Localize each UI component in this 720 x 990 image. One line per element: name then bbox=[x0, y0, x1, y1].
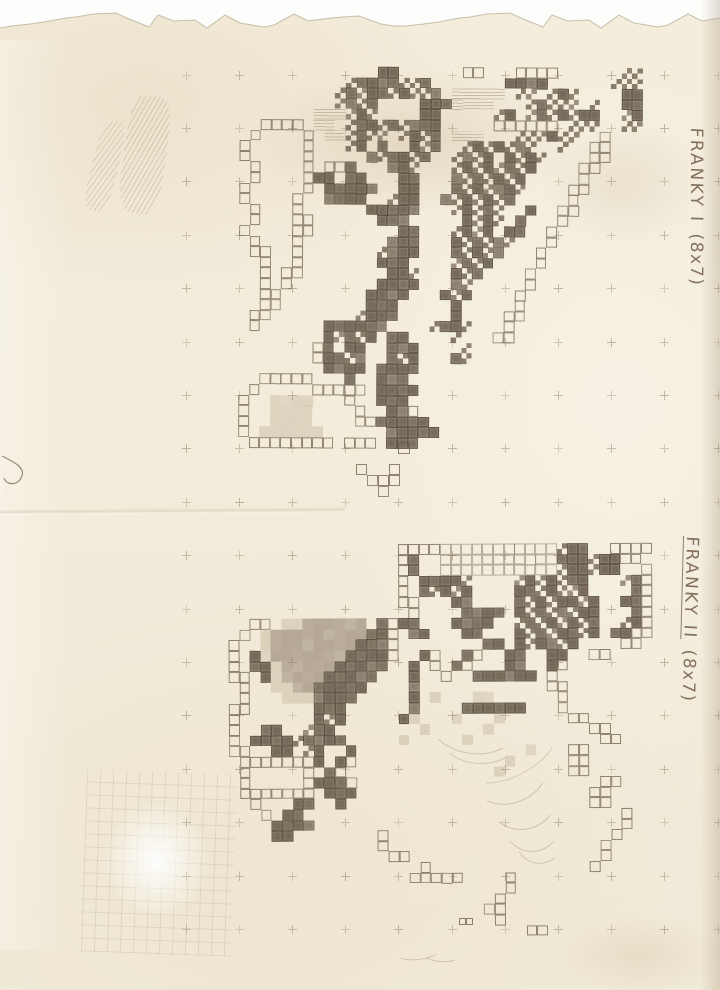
grid-cross bbox=[660, 338, 669, 347]
grid-cross bbox=[182, 925, 191, 934]
grid-cross bbox=[660, 231, 669, 240]
grid-cross bbox=[660, 872, 669, 881]
grid-cross bbox=[182, 765, 191, 774]
grid-cross bbox=[554, 338, 563, 347]
grid-cross bbox=[607, 444, 616, 453]
grid-cross bbox=[660, 498, 669, 507]
grid-cross bbox=[341, 605, 350, 614]
grid-cross bbox=[554, 765, 563, 774]
grid-cross bbox=[182, 498, 191, 507]
grid-cross bbox=[235, 925, 244, 934]
grid-cross bbox=[660, 177, 669, 186]
grid-cross bbox=[660, 391, 669, 400]
grid-cross bbox=[448, 765, 457, 774]
grid-cross bbox=[501, 444, 510, 453]
grid-cross bbox=[182, 231, 191, 240]
grid-cross bbox=[607, 872, 616, 881]
grid-cross bbox=[341, 818, 350, 827]
grid-cross bbox=[235, 284, 244, 293]
grid-cross bbox=[448, 391, 457, 400]
grid-cross bbox=[660, 925, 669, 934]
grid-cross bbox=[607, 231, 616, 240]
grid-cross bbox=[394, 765, 403, 774]
grid-cross bbox=[607, 498, 616, 507]
grid-cross bbox=[182, 391, 191, 400]
grid-cross bbox=[660, 284, 669, 293]
grid-cross bbox=[235, 872, 244, 881]
grid-cross bbox=[182, 551, 191, 560]
grid-cross bbox=[554, 444, 563, 453]
grid-cross bbox=[607, 391, 616, 400]
grid-cross bbox=[660, 71, 669, 80]
grid-cross bbox=[288, 498, 297, 507]
grid-cross bbox=[660, 124, 669, 133]
grid-cross bbox=[394, 498, 403, 507]
grid-cross bbox=[607, 338, 616, 347]
grid-cross bbox=[341, 925, 350, 934]
scanned-page: FRANKY I(8x7) FRANKY II(8x7) bbox=[0, 0, 720, 990]
grid-cross bbox=[182, 605, 191, 614]
grid-cross bbox=[660, 444, 669, 453]
grid-cross bbox=[341, 551, 350, 560]
grid-cross bbox=[288, 71, 297, 80]
grid-cross bbox=[394, 925, 403, 934]
grid-cross bbox=[607, 925, 616, 934]
grid-cross bbox=[182, 658, 191, 667]
grid-cross bbox=[554, 498, 563, 507]
grid-cross bbox=[235, 818, 244, 827]
grid-cross bbox=[554, 925, 563, 934]
grid-cross bbox=[341, 872, 350, 881]
grid-cross bbox=[235, 605, 244, 614]
grid-cross bbox=[660, 658, 669, 667]
grid-cross bbox=[235, 498, 244, 507]
grid-cross bbox=[235, 444, 244, 453]
grid-cross bbox=[448, 444, 457, 453]
grid-cross bbox=[288, 177, 297, 186]
grid-cross bbox=[288, 551, 297, 560]
graph-paper-patch bbox=[81, 769, 237, 956]
grid-cross bbox=[182, 124, 191, 133]
grid-cross bbox=[288, 925, 297, 934]
grid-cross bbox=[182, 711, 191, 720]
grid-cross bbox=[235, 338, 244, 347]
grid-cross bbox=[182, 444, 191, 453]
grid-cross bbox=[501, 284, 510, 293]
label-franky-2-name: FRANKY II bbox=[679, 536, 702, 640]
grid-cross bbox=[182, 818, 191, 827]
grid-cross bbox=[182, 71, 191, 80]
grid-cross bbox=[235, 551, 244, 560]
grid-cross bbox=[394, 872, 403, 881]
grid-cross bbox=[288, 872, 297, 881]
grid-cross bbox=[554, 872, 563, 881]
grid-cross bbox=[660, 818, 669, 827]
grid-cross bbox=[182, 338, 191, 347]
grid-cross bbox=[341, 284, 350, 293]
grid-cross bbox=[607, 605, 616, 614]
grid-cross bbox=[660, 765, 669, 774]
grid-cross bbox=[554, 284, 563, 293]
label-franky-2-size: (8x7) bbox=[678, 649, 699, 703]
grid-cross bbox=[448, 925, 457, 934]
grid-cross bbox=[607, 818, 616, 827]
grid-cross bbox=[235, 124, 244, 133]
grid-cross bbox=[554, 391, 563, 400]
grid-cross bbox=[501, 925, 510, 934]
grid-cross bbox=[607, 765, 616, 774]
grid-cross bbox=[341, 231, 350, 240]
grid-cross bbox=[607, 711, 616, 720]
grid-cross bbox=[394, 818, 403, 827]
grid-cross bbox=[501, 391, 510, 400]
paper-edge-shadow bbox=[700, 0, 720, 990]
grid-cross bbox=[288, 711, 297, 720]
grid-cross bbox=[288, 338, 297, 347]
grid-cross bbox=[341, 498, 350, 507]
grid-cross bbox=[607, 284, 616, 293]
grid-cross bbox=[182, 284, 191, 293]
grid-cross bbox=[501, 498, 510, 507]
grid-cross bbox=[448, 818, 457, 827]
grid-cross bbox=[660, 605, 669, 614]
grid-cross bbox=[448, 71, 457, 80]
grid-cross bbox=[607, 177, 616, 186]
grid-cross bbox=[660, 551, 669, 560]
grid-cross bbox=[288, 605, 297, 614]
grid-cross bbox=[235, 71, 244, 80]
grid-cross bbox=[182, 177, 191, 186]
grid-cross bbox=[182, 872, 191, 881]
grid-cross bbox=[448, 498, 457, 507]
grid-cross bbox=[554, 177, 563, 186]
grid-cross bbox=[660, 711, 669, 720]
